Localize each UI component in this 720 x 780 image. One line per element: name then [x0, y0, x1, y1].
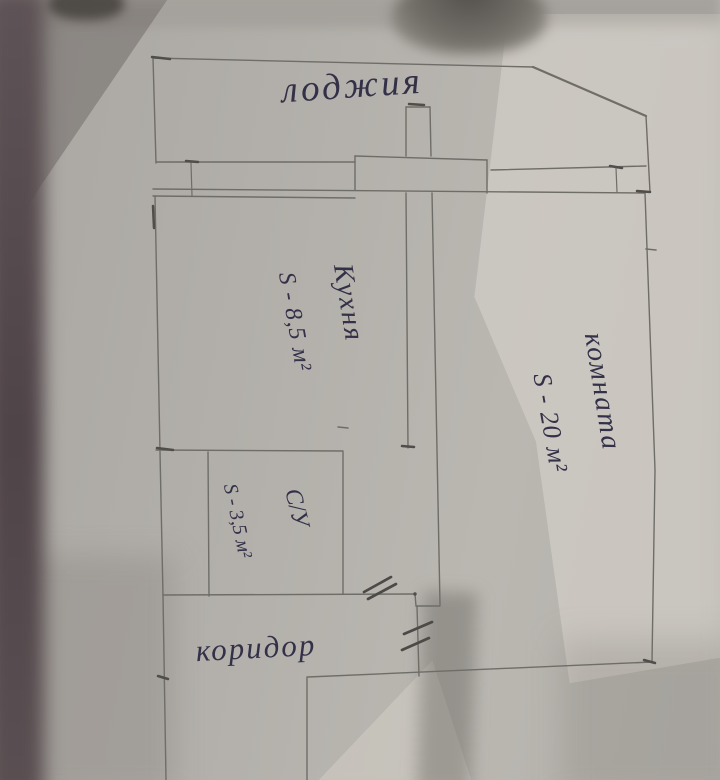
- room-label-corridor: коридор: [195, 627, 317, 669]
- corner-dot: [413, 592, 416, 595]
- vent-shaft-outline: [355, 107, 487, 193]
- kitchen-room-divider: [406, 193, 440, 605]
- bold-tick-marks: [152, 57, 655, 679]
- left-wall: [155, 196, 166, 780]
- floor-plan-photo: лоджия Кухня S - 8,5 м² комната S - 20 м…: [0, 0, 720, 780]
- corridor-wall: [307, 606, 419, 780]
- door-opening-marks: [364, 577, 432, 650]
